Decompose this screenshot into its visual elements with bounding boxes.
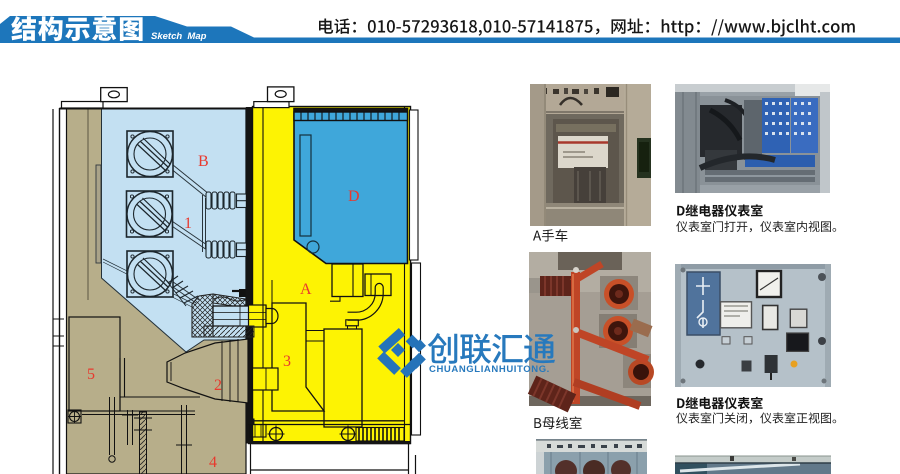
svg-text:3: 3	[283, 353, 291, 370]
svg-text:5: 5	[87, 366, 95, 383]
svg-text:D: D	[348, 188, 360, 205]
svg-text:2: 2	[214, 377, 222, 394]
svg-text:CHUANGLIANHUITONG.: CHUANGLIANHUITONG.	[429, 364, 550, 375]
svg-text:A: A	[300, 281, 312, 298]
svg-text:Sketch Map: Sketch Map	[151, 31, 207, 42]
svg-text:B: B	[198, 153, 209, 170]
svg-text:1: 1	[184, 215, 192, 232]
svg-text:4: 4	[209, 454, 217, 471]
